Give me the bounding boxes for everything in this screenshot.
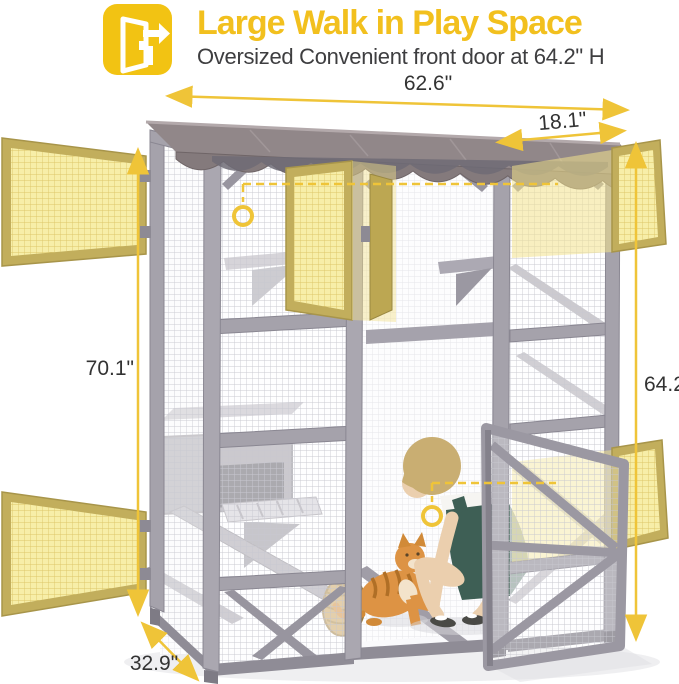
catio-illustration: 62.6" 18.1" 70.1" 64.2" 32.9": [0, 0, 679, 684]
left-upper-door-highlight: [2, 138, 151, 266]
open-front-door: [486, 428, 624, 666]
dim-door-width-label: 18.1": [537, 108, 587, 135]
dim-top-width-label: 62.6": [404, 72, 452, 95]
product-infographic: Large Walk in Play Space Oversized Conve…: [0, 0, 679, 684]
dim-top-width-arrow: [170, 96, 625, 110]
dim-depth-label: 32.9": [130, 652, 178, 675]
dim-door-height-label: 64.2": [644, 373, 679, 396]
dim-left-height-label: 70.1": [86, 357, 134, 380]
left-lower-door-highlight: [2, 492, 151, 616]
